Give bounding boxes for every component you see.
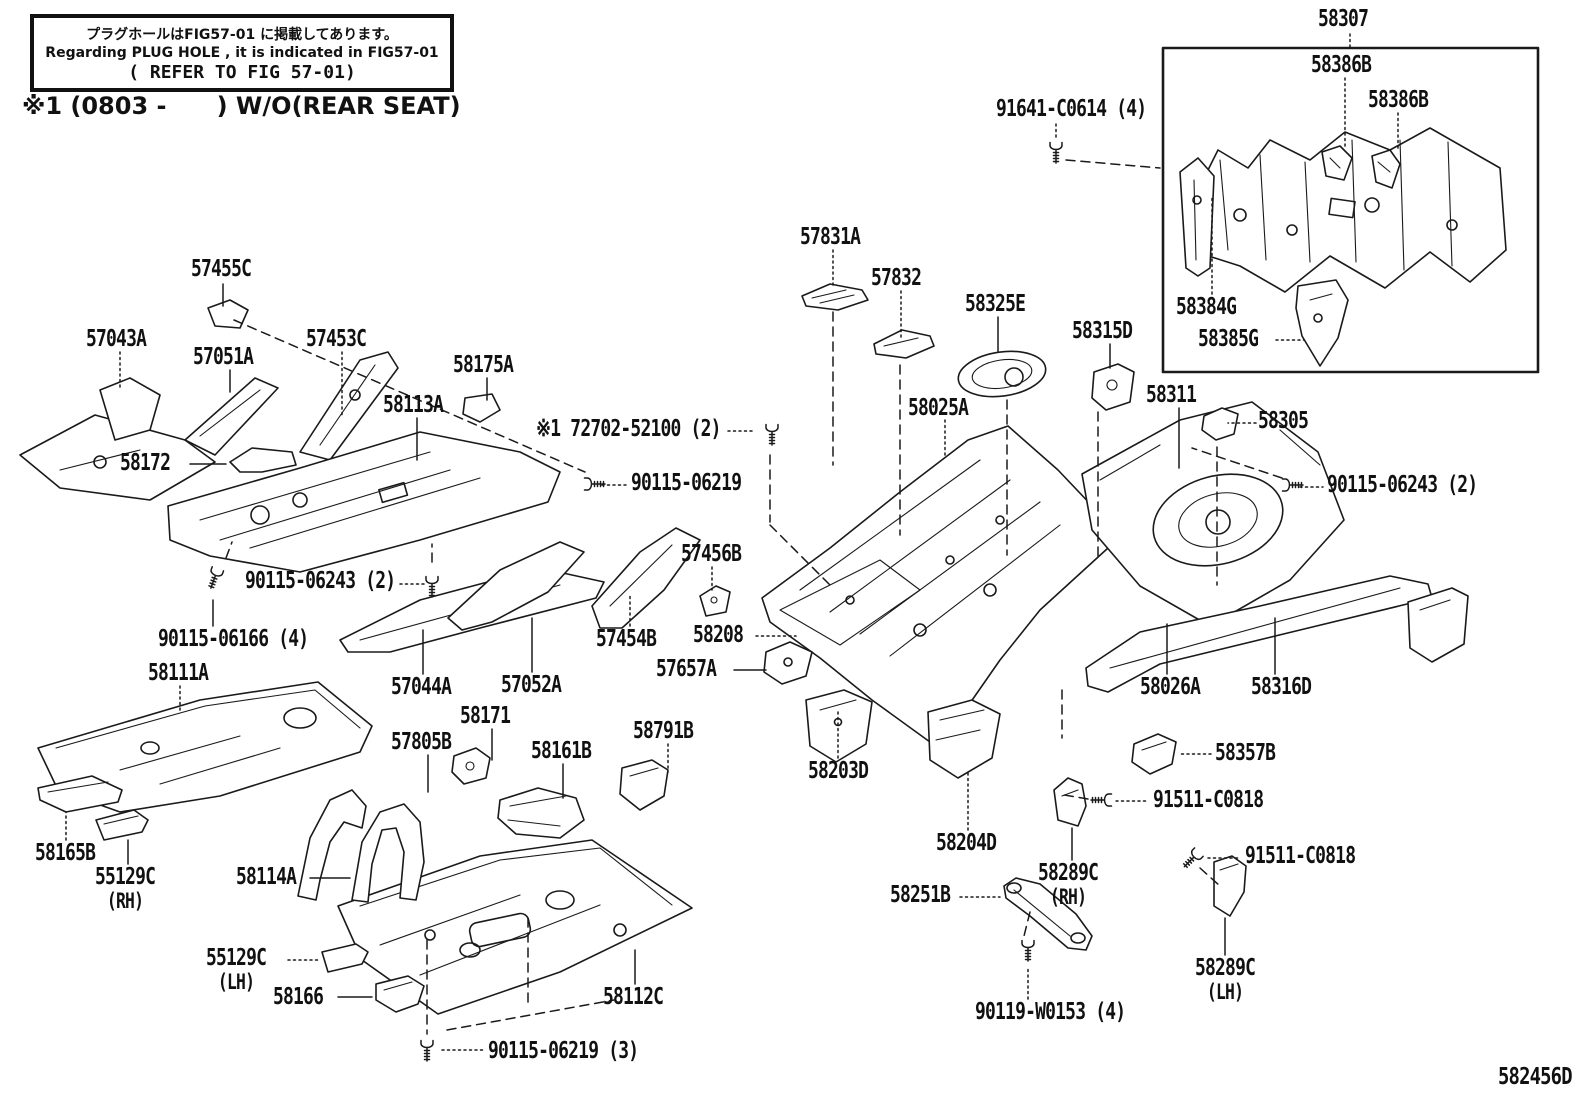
part-label: 55129C(LH) <box>206 947 266 994</box>
part-label: 58311 <box>1146 384 1196 407</box>
part-label: 58172 <box>120 452 170 475</box>
part-label-sub: (RH) <box>95 889 155 913</box>
part-label: 58165B <box>35 842 95 865</box>
part-label: ※1 72702-52100 (2) <box>536 418 721 441</box>
part-label: 57805B <box>391 731 451 754</box>
part-label: 90115-06219 <box>631 472 741 495</box>
part-label: 58171 <box>460 705 510 728</box>
part-label-sub: (LH) <box>206 970 266 994</box>
plug-hole-note-box: プラグホールはFIG57-01 に掲載してあります。 Regarding PLU… <box>30 14 454 92</box>
part-label: 90115-06219 (3) <box>488 1040 638 1063</box>
part-label: 57043A <box>86 328 146 351</box>
part-label: 90115-06166 (4) <box>158 628 308 651</box>
applicability-footnote: ※1 (0803 - ) W/O(REAR SEAT) <box>22 92 461 120</box>
part-label: 58203D <box>808 760 868 783</box>
part-label: 57831A <box>800 226 860 249</box>
part-label: 58791B <box>633 720 693 743</box>
part-label: 91511-C0818 <box>1245 845 1355 868</box>
parts-diagram-canvas: 5830758386B58386B91641-C0614 (4)58384G58… <box>0 0 1592 1099</box>
part-label: 90119-W0153 (4) <box>975 1001 1125 1024</box>
part-label: 58113A <box>383 394 443 417</box>
part-label: 57454B <box>596 628 656 651</box>
part-label: 57453C <box>306 328 366 351</box>
part-label: 58307 <box>1318 8 1368 31</box>
part-label: 57052A <box>501 674 561 697</box>
figure-code: 582456D <box>1498 1064 1572 1090</box>
note-line-japanese: プラグホールはFIG57-01 に掲載してあります。 <box>86 24 398 44</box>
part-label: 58175A <box>453 354 513 377</box>
part-label: 58325E <box>965 293 1025 316</box>
part-label: 58357B <box>1215 742 1275 765</box>
part-label: 58114A <box>236 866 296 889</box>
part-label: 58315D <box>1072 320 1132 343</box>
part-label-sub: (LH) <box>1195 980 1255 1004</box>
note-line-english: Regarding PLUG HOLE , it is indicated in… <box>45 45 438 61</box>
labels-layer: 5830758386B58386B91641-C0614 (4)58384G58… <box>0 0 1592 1099</box>
part-label: 58166 <box>273 986 323 1009</box>
part-label: 58305 <box>1258 410 1308 433</box>
part-label: 57455C <box>191 258 251 281</box>
part-label: 57044A <box>391 676 451 699</box>
part-label: 57657A <box>656 658 716 681</box>
part-label: 57051A <box>193 346 253 369</box>
part-label: 58208 <box>693 624 743 647</box>
part-label: 90115-06243 (2) <box>1327 474 1477 497</box>
part-label: 58384G <box>1176 296 1236 319</box>
part-label: 58161B <box>531 740 591 763</box>
part-label: 58111A <box>148 662 208 685</box>
part-label: 91641-C0614 (4) <box>996 98 1146 121</box>
part-label: 58025A <box>908 397 968 420</box>
part-label: 58026A <box>1140 676 1200 699</box>
part-label: 58251B <box>890 884 950 907</box>
part-label: 58112C <box>603 986 663 1009</box>
part-label: 58204D <box>936 832 996 855</box>
part-label: 57456B <box>681 543 741 566</box>
part-label: 58386B <box>1311 54 1371 77</box>
part-label: 58316D <box>1251 676 1311 699</box>
part-label: 58385G <box>1198 328 1258 351</box>
part-label: 58386B <box>1368 89 1428 112</box>
part-label: 57832 <box>871 267 921 290</box>
part-label: 58289C(RH) <box>1038 862 1098 909</box>
note-line-refer: ( REFER TO FIG 57-01) <box>128 62 356 83</box>
part-label: 90115-06243 (2) <box>245 570 395 593</box>
part-label: 55129C(RH) <box>95 866 155 913</box>
part-label: 58289C(LH) <box>1195 957 1255 1004</box>
part-label: 91511-C0818 <box>1153 789 1263 812</box>
part-label-sub: (RH) <box>1038 885 1098 909</box>
